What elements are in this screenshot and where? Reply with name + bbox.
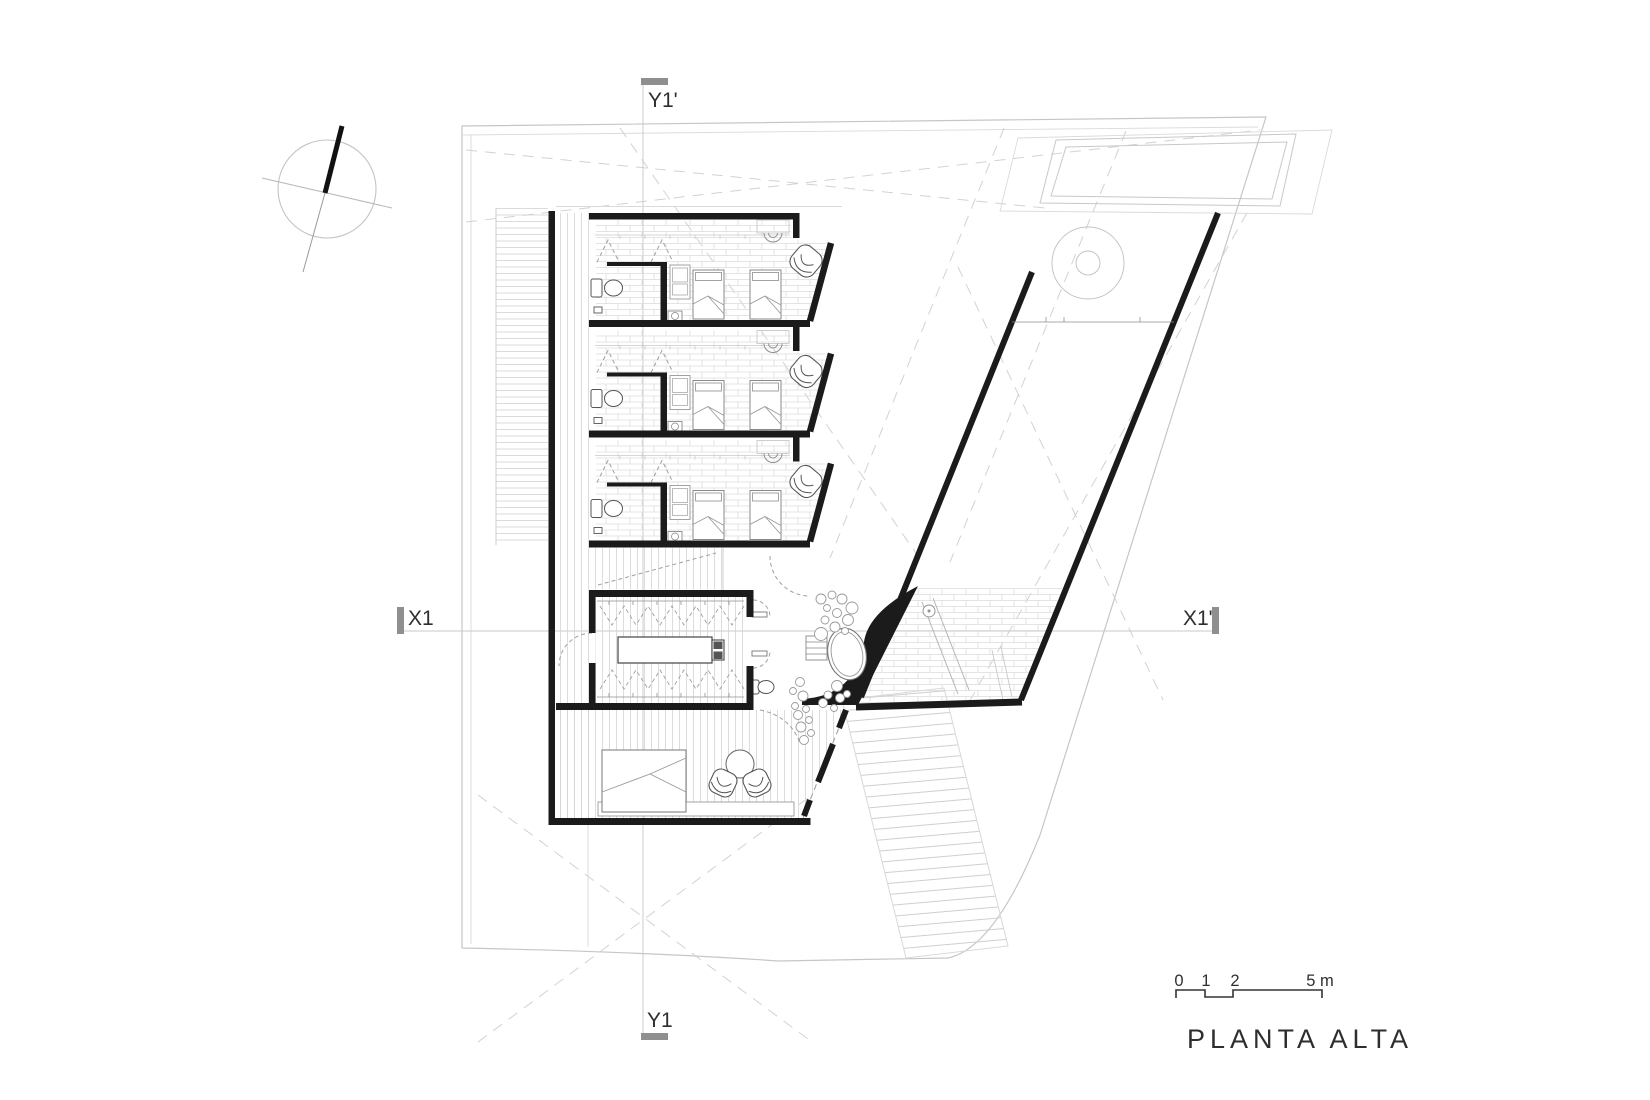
master-bed xyxy=(602,750,686,812)
powder-room-toilet xyxy=(750,680,774,694)
marker-label-x1-right: X1' xyxy=(1183,607,1213,630)
pool-outline xyxy=(1000,130,1332,214)
marker-bar xyxy=(641,78,668,85)
exterior-stair xyxy=(496,208,548,545)
north-needle xyxy=(325,126,342,193)
marker-label-x1-left: X1 xyxy=(408,607,434,630)
floor-plan-drawing: Y1' Y1 X1 X1' 0 1 2 5 m PLANTA ALTA xyxy=(0,0,1650,1100)
marker-label-y1-bottom: Y1 xyxy=(647,1009,673,1032)
staircase xyxy=(589,548,723,590)
section-marker-x1-right: X1' xyxy=(1183,607,1219,634)
plan-title: PLANTA ALTA xyxy=(1187,1024,1413,1054)
scale-tick-2: 2 xyxy=(1230,972,1239,990)
floor-plan-page: Y1' Y1 X1 X1' 0 1 2 5 m PLANTA ALTA xyxy=(0,0,1650,1100)
section-marker-x1-left: X1 xyxy=(397,607,434,634)
marker-bar xyxy=(397,607,404,634)
kitchen-island xyxy=(618,637,724,663)
scale-tick-1: 1 xyxy=(1201,972,1210,990)
section-marker-y1-bottom: Y1 xyxy=(641,1009,673,1040)
glass-balustrade xyxy=(1012,317,1174,322)
marker-bar xyxy=(641,1033,668,1040)
section-marker-y1-top: Y1' xyxy=(641,78,678,112)
scale-end-label: 5 m xyxy=(1306,972,1334,990)
marker-bar xyxy=(1212,607,1219,634)
marker-label-y1-top: Y1' xyxy=(648,89,678,112)
scale-bar: 0 1 2 5 m xyxy=(1174,972,1333,998)
tree-circle xyxy=(1052,227,1124,299)
north-arrow xyxy=(262,126,392,272)
scale-tick-0: 0 xyxy=(1174,972,1183,990)
garden-stair xyxy=(842,688,1008,958)
